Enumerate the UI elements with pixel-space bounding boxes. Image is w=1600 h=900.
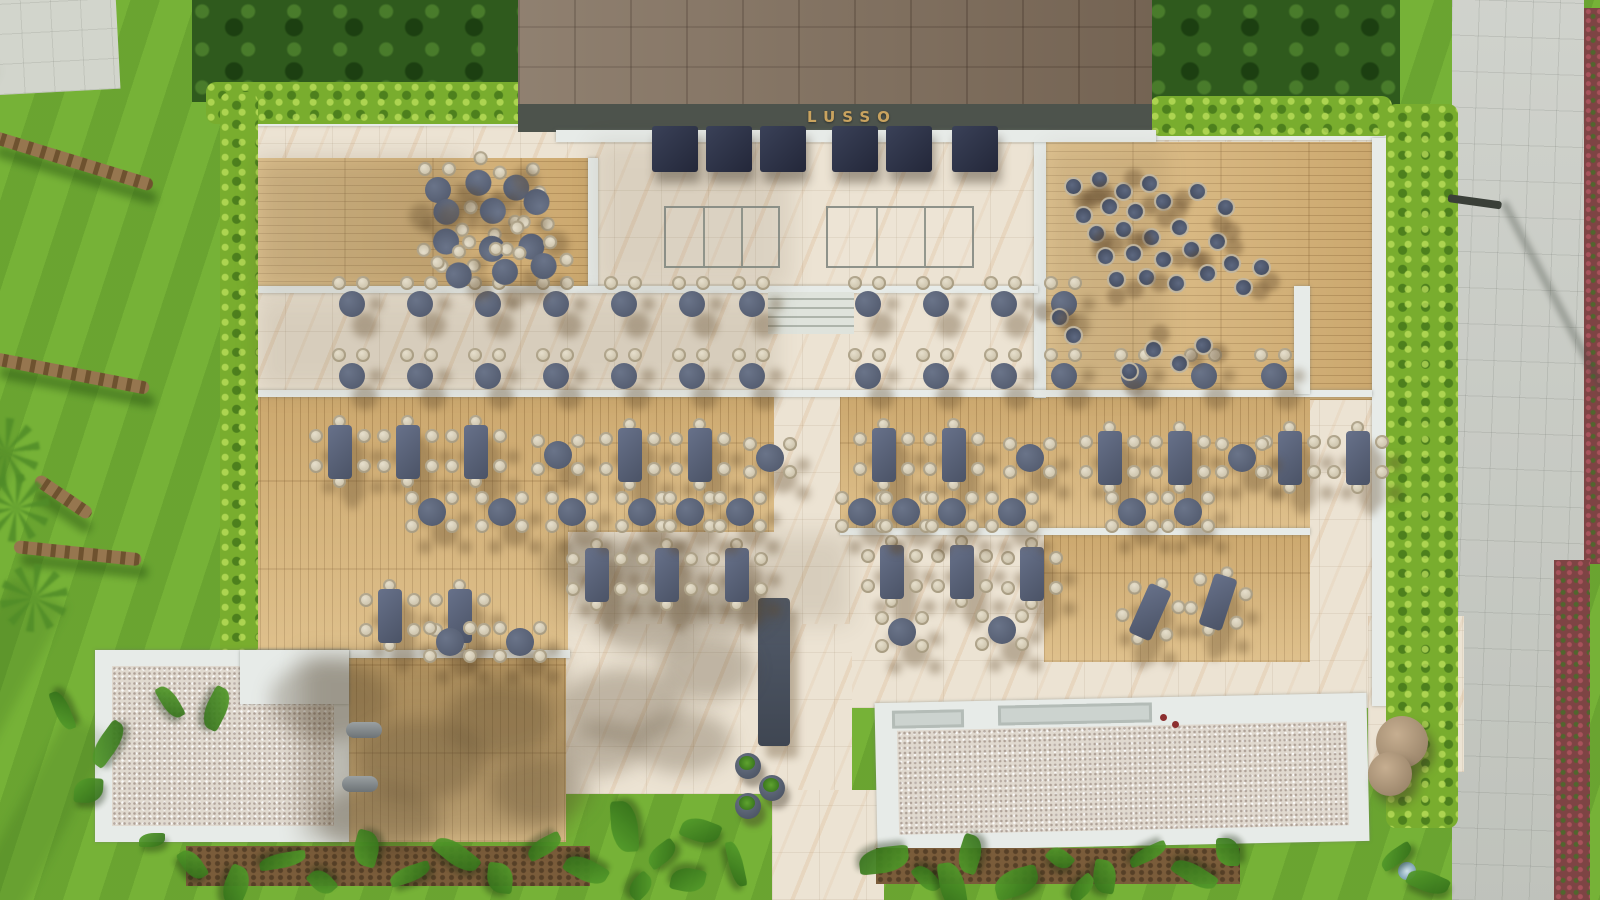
dining-table-round4	[743, 431, 797, 485]
chair	[566, 552, 580, 566]
chair	[909, 549, 923, 563]
chair	[477, 593, 491, 607]
dining-table-round4	[713, 485, 767, 539]
chair	[872, 348, 886, 362]
chair	[1001, 581, 1015, 595]
dining-table-rect6	[1149, 421, 1211, 495]
chair	[915, 639, 929, 653]
chair	[309, 429, 323, 443]
chair	[1114, 348, 1128, 362]
chair	[743, 465, 757, 479]
dining-table-rect6	[1327, 421, 1389, 495]
palm-frond	[0, 564, 68, 632]
chair	[515, 519, 529, 533]
trellis-bar	[703, 208, 705, 266]
chair	[971, 462, 985, 476]
chair	[1003, 465, 1017, 479]
red-marker	[1160, 714, 1167, 721]
chair	[356, 276, 370, 290]
red-marker	[1172, 721, 1179, 728]
chair	[909, 579, 923, 593]
chair	[1068, 276, 1082, 290]
table-top	[1020, 547, 1044, 601]
dining-table-round4	[493, 615, 547, 669]
tree-shadow-blob	[445, 682, 555, 758]
table-top	[676, 498, 704, 526]
dining-table-round4	[985, 485, 1039, 539]
table-top	[339, 363, 365, 389]
chair	[663, 491, 677, 505]
chair	[560, 348, 574, 362]
awning	[652, 126, 698, 172]
chair	[696, 276, 710, 290]
table-top	[1118, 498, 1146, 526]
chair	[672, 348, 686, 362]
chair	[879, 519, 893, 533]
chair	[783, 465, 797, 479]
table-top	[1016, 444, 1044, 472]
table-top	[756, 444, 784, 472]
bottom-walkway	[772, 790, 884, 900]
chair	[1127, 435, 1141, 449]
chair	[647, 432, 661, 446]
chair	[1079, 435, 1093, 449]
table-top	[872, 428, 896, 482]
dining-table-round4	[475, 485, 529, 539]
chair	[1191, 571, 1209, 589]
table-top	[618, 428, 642, 482]
dining-table-rect6	[636, 538, 698, 612]
chair	[783, 437, 797, 451]
table-top	[543, 291, 569, 317]
bar-counter-tray-long	[998, 702, 1152, 725]
chair	[359, 593, 373, 607]
chair	[493, 429, 507, 443]
chair	[1068, 348, 1082, 362]
chair	[1049, 581, 1063, 595]
dining-table-round4	[925, 485, 979, 539]
potted-plant	[735, 753, 761, 779]
dining-table-rect6	[309, 415, 371, 489]
dining-table-rect6	[599, 418, 661, 492]
pipe	[346, 722, 382, 738]
table-top	[991, 291, 1017, 317]
tree-shadow-blob	[632, 711, 732, 773]
chair	[1044, 348, 1058, 362]
table-top	[436, 628, 464, 656]
chair	[901, 432, 915, 446]
chair	[756, 276, 770, 290]
center-steps	[768, 292, 854, 334]
bar-counter-tray-small	[892, 709, 964, 729]
chair	[931, 579, 945, 593]
dining-table-rect6	[1001, 537, 1063, 611]
dining-table-round4	[1215, 431, 1269, 485]
trellis-bar	[876, 208, 878, 266]
dining-table-round2	[845, 276, 891, 320]
table-top	[339, 291, 365, 317]
dining-table-rect6	[706, 538, 768, 612]
table-top	[688, 428, 712, 482]
chair	[835, 519, 849, 533]
chair	[848, 348, 862, 362]
table-top	[655, 548, 679, 602]
dining-table-round4	[663, 485, 717, 539]
chair	[377, 429, 391, 443]
chair	[1127, 465, 1141, 479]
table-top	[1098, 431, 1122, 485]
table-top	[407, 291, 433, 317]
chair	[1327, 435, 1341, 449]
chair	[492, 348, 506, 362]
dining-table-round2	[1041, 348, 1087, 392]
chair	[1161, 519, 1175, 533]
chair	[400, 276, 414, 290]
table-top	[611, 291, 637, 317]
table-top	[998, 498, 1026, 526]
table-top	[1051, 363, 1077, 389]
chair	[628, 276, 642, 290]
table-top	[418, 498, 446, 526]
table-top	[1191, 363, 1217, 389]
chair	[429, 593, 443, 607]
chair	[463, 649, 477, 663]
chair	[615, 491, 629, 505]
dining-table-round2	[981, 276, 1027, 320]
chair	[463, 621, 477, 635]
dining-table-round2	[729, 276, 775, 320]
chair	[743, 437, 757, 451]
table-top	[488, 498, 516, 526]
table-top	[611, 363, 637, 389]
chair	[566, 582, 580, 596]
chair	[1201, 491, 1215, 505]
chair	[488, 241, 504, 257]
chair	[1105, 519, 1119, 533]
potted-plant	[735, 793, 761, 819]
tree-shadow-blob	[490, 757, 590, 823]
chair	[915, 611, 929, 625]
dining-table-round4	[875, 605, 929, 659]
dining-table-round4	[1003, 431, 1057, 485]
chair	[442, 162, 456, 176]
building-roof	[518, 0, 1152, 108]
chair	[669, 432, 683, 446]
trellis-bar	[741, 208, 743, 266]
chair	[445, 459, 459, 473]
dining-table-round2	[601, 276, 647, 320]
chair	[1197, 465, 1211, 479]
chair	[531, 434, 545, 448]
chair	[357, 429, 371, 443]
chair	[1001, 551, 1015, 565]
concrete-pad	[0, 0, 120, 95]
dining-table-round2	[601, 348, 647, 392]
dining-table-round2	[669, 276, 715, 320]
table-top	[585, 548, 609, 602]
table-top	[739, 363, 765, 389]
chair	[531, 462, 545, 476]
table-top	[475, 363, 501, 389]
chair	[985, 491, 999, 505]
awning	[832, 126, 878, 172]
chair	[1375, 435, 1389, 449]
table-top	[378, 589, 402, 643]
chair	[1008, 348, 1022, 362]
table-top	[892, 498, 920, 526]
chair	[984, 348, 998, 362]
chair	[636, 582, 650, 596]
chair	[475, 519, 489, 533]
chair	[713, 491, 727, 505]
chair	[971, 432, 985, 446]
dining-table-round4	[545, 485, 599, 539]
table-top	[490, 257, 520, 287]
chair	[536, 348, 550, 362]
chair	[407, 593, 421, 607]
dining-table-round2	[465, 348, 511, 392]
chair	[965, 519, 979, 533]
chair	[585, 519, 599, 533]
chair	[599, 432, 613, 446]
chair	[1161, 491, 1175, 505]
chair	[468, 348, 482, 362]
table-top	[923, 291, 949, 317]
table-top	[543, 363, 569, 389]
chair	[706, 552, 720, 566]
chair	[475, 491, 489, 505]
table-top	[888, 618, 916, 646]
table-top	[396, 425, 420, 479]
table-top	[522, 188, 550, 216]
chair	[853, 432, 867, 446]
chair	[445, 519, 459, 533]
table-top	[628, 498, 656, 526]
dining-table-rect6	[377, 415, 439, 489]
chair	[753, 491, 767, 505]
chair	[1201, 519, 1215, 533]
chair	[1003, 437, 1017, 451]
dining-table-round2	[845, 348, 891, 392]
hedge-top-right	[1150, 96, 1392, 136]
chair	[571, 462, 585, 476]
table-top	[506, 628, 534, 656]
dining-table-rect6	[445, 415, 507, 489]
chair	[1182, 599, 1200, 617]
chair	[332, 348, 346, 362]
chair	[965, 491, 979, 505]
dining-table-round4	[423, 615, 477, 669]
table-top	[1346, 431, 1370, 485]
chair	[931, 549, 945, 563]
table-top	[848, 498, 876, 526]
chair	[599, 462, 613, 476]
flower-strip-top	[1584, 8, 1600, 564]
dining-table-rect6	[1079, 421, 1141, 495]
dining-table-round2	[913, 348, 959, 392]
chair	[717, 462, 731, 476]
chair	[407, 623, 421, 637]
dining-table-rect6	[853, 418, 915, 492]
chair	[732, 348, 746, 362]
chair	[418, 162, 432, 176]
trellis-frame	[664, 206, 780, 268]
chair	[1278, 348, 1292, 362]
chair	[1255, 437, 1269, 451]
dining-table-round4	[531, 428, 585, 482]
chair	[754, 552, 768, 566]
table-top	[407, 363, 433, 389]
chair	[923, 462, 937, 476]
table-top	[328, 425, 352, 479]
table-top	[855, 291, 881, 317]
chair	[975, 637, 989, 651]
dining-table-rect6	[359, 579, 421, 653]
dining-table-round4	[1161, 485, 1215, 539]
pot-foliage	[739, 796, 755, 810]
hedge-left	[220, 92, 258, 658]
table-top	[739, 291, 765, 317]
chair	[425, 459, 439, 473]
chair	[1307, 465, 1321, 479]
chair	[628, 348, 642, 362]
dining-table-round2	[397, 348, 443, 392]
chair	[975, 609, 989, 623]
chair	[1043, 437, 1057, 451]
chair	[604, 348, 618, 362]
chair	[1049, 551, 1063, 565]
chair	[669, 462, 683, 476]
table-top	[1261, 363, 1287, 389]
chair	[309, 459, 323, 473]
chair	[1145, 491, 1159, 505]
awning	[886, 126, 932, 172]
chair	[875, 639, 889, 653]
chair	[1105, 491, 1119, 505]
chair	[879, 491, 893, 505]
chair	[424, 348, 438, 362]
chair	[713, 519, 727, 533]
chair	[979, 579, 993, 593]
table-top	[558, 498, 586, 526]
dining-table-round2	[669, 348, 715, 392]
chair	[717, 432, 731, 446]
table-top	[923, 363, 949, 389]
pipe	[342, 776, 378, 792]
chair	[1375, 465, 1389, 479]
table-top	[880, 545, 904, 599]
stacked-chair	[1064, 177, 1083, 196]
dining-table-rect6	[669, 418, 731, 492]
dining-table-round2	[729, 348, 775, 392]
chair	[332, 276, 346, 290]
chair	[647, 462, 661, 476]
table-top	[988, 616, 1016, 644]
table-top	[725, 548, 749, 602]
chair	[672, 276, 686, 290]
dining-table-round2	[329, 276, 375, 320]
chair	[1255, 465, 1269, 479]
pot-foliage	[763, 778, 779, 792]
chair	[853, 462, 867, 476]
chair	[614, 552, 628, 566]
chair	[571, 434, 585, 448]
dining-table-round4	[615, 485, 669, 539]
chair	[979, 549, 993, 563]
chair	[377, 459, 391, 473]
chair	[835, 491, 849, 505]
chair	[756, 348, 770, 362]
chair	[356, 348, 370, 362]
chair	[604, 276, 618, 290]
chair	[1215, 465, 1229, 479]
chair	[861, 579, 875, 593]
table-top	[855, 363, 881, 389]
trellis-bar	[924, 208, 926, 266]
potted-plant	[759, 775, 785, 801]
chair	[405, 519, 419, 533]
chair	[585, 491, 599, 505]
patio-umbrella	[1368, 752, 1412, 796]
table-top	[942, 428, 966, 482]
table-top	[950, 545, 974, 599]
chair	[753, 519, 767, 533]
chair	[923, 432, 937, 446]
chair	[493, 459, 507, 473]
chair	[754, 582, 768, 596]
trellis-frame	[826, 206, 974, 268]
chair	[1015, 609, 1029, 623]
chair	[493, 621, 507, 635]
dining-table-round2	[913, 276, 959, 320]
dining-table-round4	[975, 603, 1029, 657]
chair	[545, 491, 559, 505]
chair	[984, 276, 998, 290]
chair	[985, 519, 999, 533]
table-top	[475, 291, 501, 317]
bar-building-gravel-roof	[897, 721, 1349, 834]
chair	[1327, 465, 1341, 479]
chair	[706, 582, 720, 596]
chair	[901, 462, 915, 476]
chair	[425, 429, 439, 443]
chair	[1197, 435, 1211, 449]
chair	[732, 276, 746, 290]
awning	[760, 126, 806, 172]
chair	[663, 519, 677, 533]
chair	[1025, 491, 1039, 505]
chair	[684, 582, 698, 596]
chair	[696, 348, 710, 362]
table-top	[938, 498, 966, 526]
chair	[1215, 437, 1229, 451]
chair	[405, 491, 419, 505]
flower-strip-bottom	[1554, 560, 1590, 900]
chair	[848, 276, 862, 290]
chair	[445, 491, 459, 505]
chair	[359, 623, 373, 637]
table-top	[1168, 431, 1192, 485]
chair	[533, 649, 547, 663]
table-top	[464, 425, 488, 479]
chair	[400, 348, 414, 362]
table-top	[544, 441, 572, 469]
chair	[1008, 276, 1022, 290]
chair	[423, 649, 437, 663]
chair	[477, 623, 491, 637]
awning	[952, 126, 998, 172]
table-top	[1174, 498, 1202, 526]
